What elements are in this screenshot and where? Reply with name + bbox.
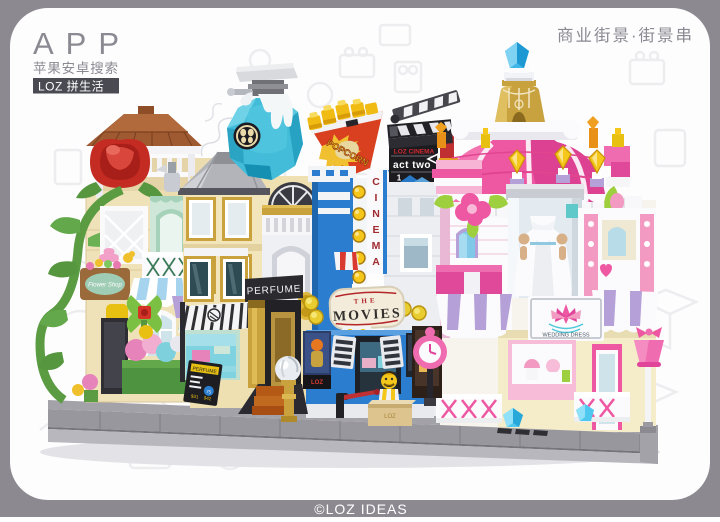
svg-text:商业街景·街景串: 商业街景·街景串 — [557, 26, 694, 45]
svg-text:E: E — [372, 224, 379, 236]
svg-text:APP: APP — [33, 26, 131, 61]
svg-text:N: N — [372, 208, 380, 220]
svg-text:©LOZ IDEAS: ©LOZ IDEAS — [314, 501, 407, 517]
svg-text:LOZ CINEMA: LOZ CINEMA — [394, 149, 435, 156]
svg-text:M: M — [372, 240, 381, 252]
svg-text:LOZ: LOZ — [311, 380, 323, 386]
svg-text:1: 1 — [397, 174, 402, 183]
svg-text:WEDDING DRESS: WEDDING DRESS — [542, 333, 589, 339]
svg-text:THE: THE — [354, 296, 378, 305]
svg-text:LOZ: LOZ — [384, 414, 396, 420]
svg-text:苹果安卓搜索: 苹果安卓搜索 — [33, 61, 119, 76]
svg-text:C: C — [372, 176, 380, 188]
svg-text:I: I — [375, 192, 378, 204]
svg-text:LOZ 拼生活: LOZ 拼生活 — [38, 80, 104, 94]
svg-text:A: A — [372, 256, 380, 268]
svg-text:act two: act two — [393, 160, 431, 171]
svg-text:Flower Shop: Flower Shop — [88, 283, 122, 289]
